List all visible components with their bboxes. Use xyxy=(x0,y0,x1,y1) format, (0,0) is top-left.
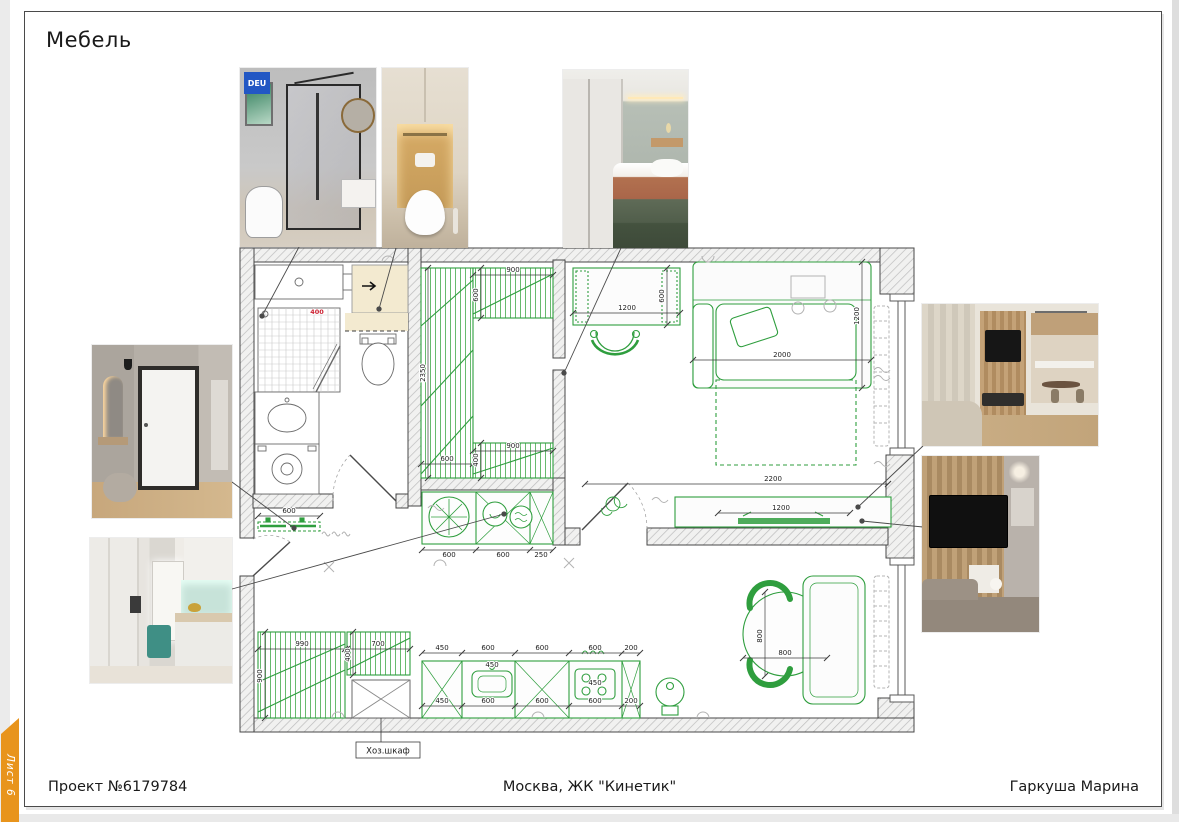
dim-label: 600 xyxy=(481,644,494,652)
footer-author: Гаркуша Марина xyxy=(1010,779,1139,795)
dim-label: 400 xyxy=(472,453,480,466)
teal-sofa xyxy=(147,625,171,658)
dim-label: 400 xyxy=(310,308,324,316)
upper-cabinets xyxy=(184,538,232,580)
vanity xyxy=(341,179,376,208)
photo-toilet-niche xyxy=(382,68,468,248)
dining-chair xyxy=(1051,389,1059,403)
dim-label: 2350 xyxy=(419,364,427,382)
sheet-number-label: Лист 6 xyxy=(4,754,16,797)
kitchen-glimpse xyxy=(1011,488,1034,527)
photo-living-room xyxy=(922,304,1098,446)
photo-entrance-hall xyxy=(92,345,232,518)
photo-bedroom xyxy=(563,70,688,248)
closet-label: Хоз.шкаф xyxy=(366,747,410,757)
dining-table xyxy=(1042,381,1081,388)
tv-console xyxy=(982,393,1024,406)
dim-label: 250 xyxy=(534,551,547,559)
kitchen-counter xyxy=(1035,361,1095,368)
brand-badge: DEU xyxy=(244,72,270,94)
floor xyxy=(90,666,232,683)
floor-plan: 400 xyxy=(240,248,914,758)
countertop xyxy=(175,613,232,622)
shower-frame-top xyxy=(295,72,354,84)
dim-label: 400 xyxy=(344,648,352,661)
pendant-lamp xyxy=(124,359,132,370)
dim-label: 800 xyxy=(756,629,764,642)
kitchen-appliance-block xyxy=(422,492,553,544)
dim-label: 450 xyxy=(485,661,498,669)
dim-label: 900 xyxy=(506,442,519,450)
robot-vacuum xyxy=(656,678,684,715)
dim-label: 800 xyxy=(778,649,791,657)
footer-location: Москва, ЖК "Кинетик" xyxy=(0,779,1179,795)
dim-label: 600 xyxy=(440,455,453,463)
bedroom-furniture xyxy=(573,262,891,527)
base-cabinets xyxy=(175,622,232,666)
console-table xyxy=(98,437,129,446)
toilet-brush xyxy=(453,208,458,233)
dim-label: 450 xyxy=(588,679,601,687)
design-sheet-page: Мебель xyxy=(0,0,1179,822)
sheet-number-tab: Лист 6 xyxy=(1,718,19,822)
dim-label: 200 xyxy=(624,644,637,652)
pouf xyxy=(103,473,137,502)
kitchen-upper-cabinets xyxy=(1031,313,1098,336)
ceiling-light-glow xyxy=(1009,460,1030,485)
tv-screen xyxy=(985,330,1020,363)
dim-label: 200 xyxy=(624,697,637,705)
mirror xyxy=(103,376,123,440)
dim-label: 2200 xyxy=(764,475,782,483)
dim-label: 450 xyxy=(435,697,448,705)
dim-label: 600 xyxy=(442,551,455,559)
cabinet-seam xyxy=(424,68,426,122)
dim-label: 900 xyxy=(256,669,264,682)
dim-label: 600 xyxy=(496,551,509,559)
track-light xyxy=(1035,311,1088,313)
dining-chair xyxy=(1076,389,1084,403)
dim-label: 600 xyxy=(481,697,494,705)
led-cove-light xyxy=(628,97,683,99)
dim-label: 900 xyxy=(506,266,519,274)
dim-label: 2000 xyxy=(773,351,791,359)
wardrobe-room xyxy=(421,268,553,478)
photo-corridor-kitchen xyxy=(90,538,232,683)
vase-decor xyxy=(990,578,1002,590)
sofa-corner xyxy=(922,401,982,446)
niche-shelf xyxy=(403,133,448,136)
photo-tv-wall xyxy=(922,456,1039,632)
entrance-door xyxy=(138,366,199,490)
cabinet-seam xyxy=(108,538,110,683)
pillow xyxy=(651,159,684,177)
bathroom-fixtures xyxy=(255,265,408,494)
grey-sofa xyxy=(922,597,1039,632)
door-handle xyxy=(144,423,148,427)
sofa-backrest xyxy=(922,579,978,600)
dim-label: 450 xyxy=(435,644,448,652)
dim-label: 700 xyxy=(371,640,384,648)
dim-label: 600 xyxy=(588,644,601,652)
shower-column xyxy=(316,93,319,200)
dim-label: 600 xyxy=(658,289,666,302)
dim-label: 1200 xyxy=(853,307,861,325)
dim-label: 600 xyxy=(282,507,295,515)
pumpkin-decor xyxy=(188,603,201,612)
wood-shelf xyxy=(651,138,684,147)
dim-label: 990 xyxy=(295,640,308,648)
tv-screen xyxy=(929,495,1008,548)
side-door xyxy=(211,380,228,470)
dim-label: 1200 xyxy=(772,504,790,512)
flush-plate xyxy=(415,153,436,167)
door-seam xyxy=(588,79,590,248)
dim-label: 600 xyxy=(588,697,601,705)
round-mirror xyxy=(341,98,375,132)
photo-bathroom-shower: DEU xyxy=(240,68,376,247)
kitchen-wall xyxy=(1031,335,1098,403)
built-in-oven xyxy=(130,596,141,613)
dim-label: 600 xyxy=(535,697,548,705)
wall-lamp xyxy=(666,123,671,133)
wall-hung-toilet xyxy=(405,190,445,235)
wood-slat-panel xyxy=(980,311,1026,427)
dim-label: 600 xyxy=(535,644,548,652)
toilet xyxy=(245,186,282,238)
dim-label: 1200 xyxy=(618,304,636,312)
dim-label: 600 xyxy=(472,288,480,301)
kitchen-cabinets xyxy=(422,651,640,718)
utility-closet xyxy=(352,680,410,718)
